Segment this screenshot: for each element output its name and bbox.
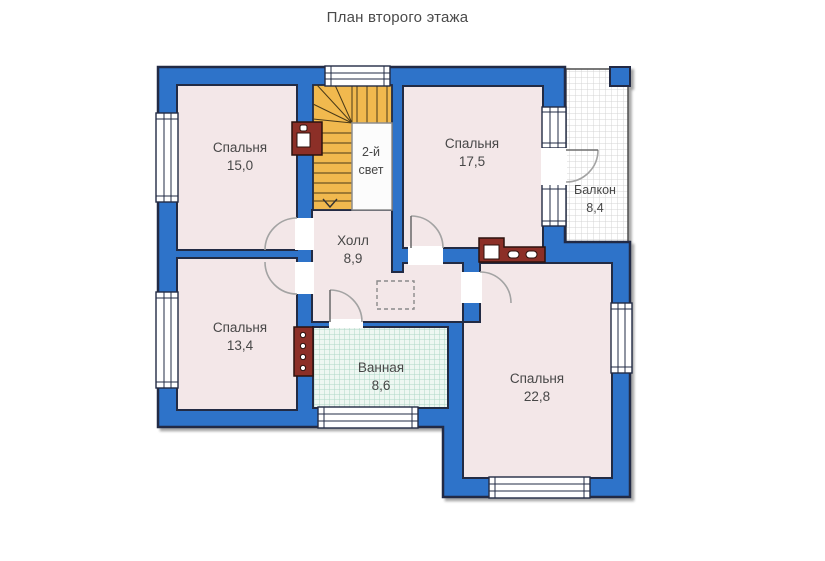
window-right-bedroom [611, 303, 632, 373]
window-left-upper [156, 113, 178, 202]
room-area: 17,5 [459, 154, 485, 169]
room-label: Холл [337, 233, 369, 248]
window-bottom-bedroom [489, 477, 590, 498]
room-area: 8,4 [586, 201, 603, 215]
door-opening [541, 148, 567, 185]
balcony-corner-pier [610, 67, 630, 86]
room-label: Ванная [358, 360, 404, 375]
window-top-stairs [325, 66, 390, 86]
door-opening [295, 262, 314, 294]
room-area: 8,9 [344, 251, 363, 266]
door-opening [295, 218, 314, 250]
room-area: 22,8 [524, 389, 550, 404]
room-label: свет [358, 163, 383, 177]
door-opening [461, 272, 482, 303]
room-label: Балкон [574, 183, 616, 197]
room-area: 8,6 [372, 378, 391, 393]
door-opening [408, 246, 443, 265]
floor-plan: Спальня 15,0 Спальня 17,5 2-й свет Балко… [0, 0, 825, 561]
room-label: Спальня [445, 136, 499, 151]
room-area: 15,0 [227, 158, 253, 173]
window-balcony-upper [542, 107, 566, 148]
staircase [313, 85, 392, 210]
room-label: 2-й [362, 145, 380, 159]
room-label: Спальня [213, 320, 267, 335]
room-label: Спальня [510, 371, 564, 386]
window-left-lower [156, 292, 178, 388]
room-label: Спальня [213, 140, 267, 155]
window-bathroom-bottom [318, 407, 418, 428]
room-area: 13,4 [227, 338, 254, 353]
chimney-flue-stairs [292, 122, 322, 155]
window-balcony-lower [542, 184, 566, 226]
door-opening [329, 319, 363, 328]
vent-block-bathroom [294, 327, 313, 376]
